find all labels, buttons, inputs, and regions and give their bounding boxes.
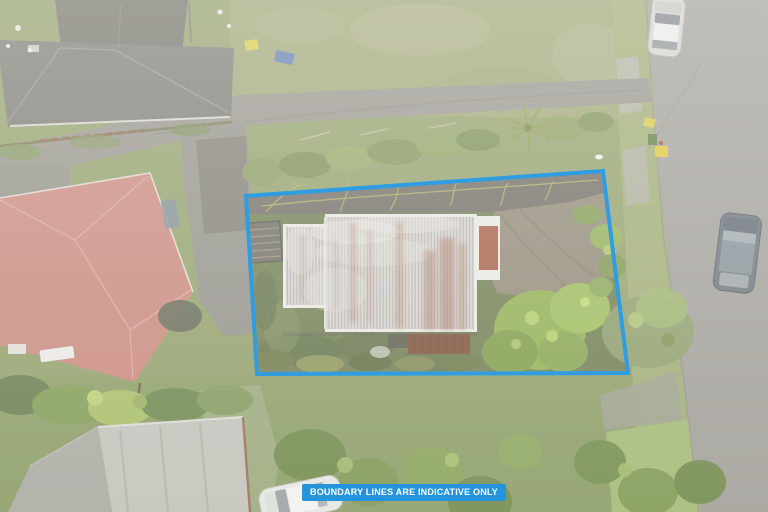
aerial-photo-canvas — [0, 0, 768, 512]
aerial-photo: BOUNDARY LINES ARE INDICATIVE ONLY — [0, 0, 768, 512]
boundary-banner: BOUNDARY LINES ARE INDICATIVE ONLY — [302, 484, 506, 501]
boundary-banner-text: BOUNDARY LINES ARE INDICATIVE ONLY — [310, 487, 498, 497]
haze-overlay — [0, 0, 768, 512]
